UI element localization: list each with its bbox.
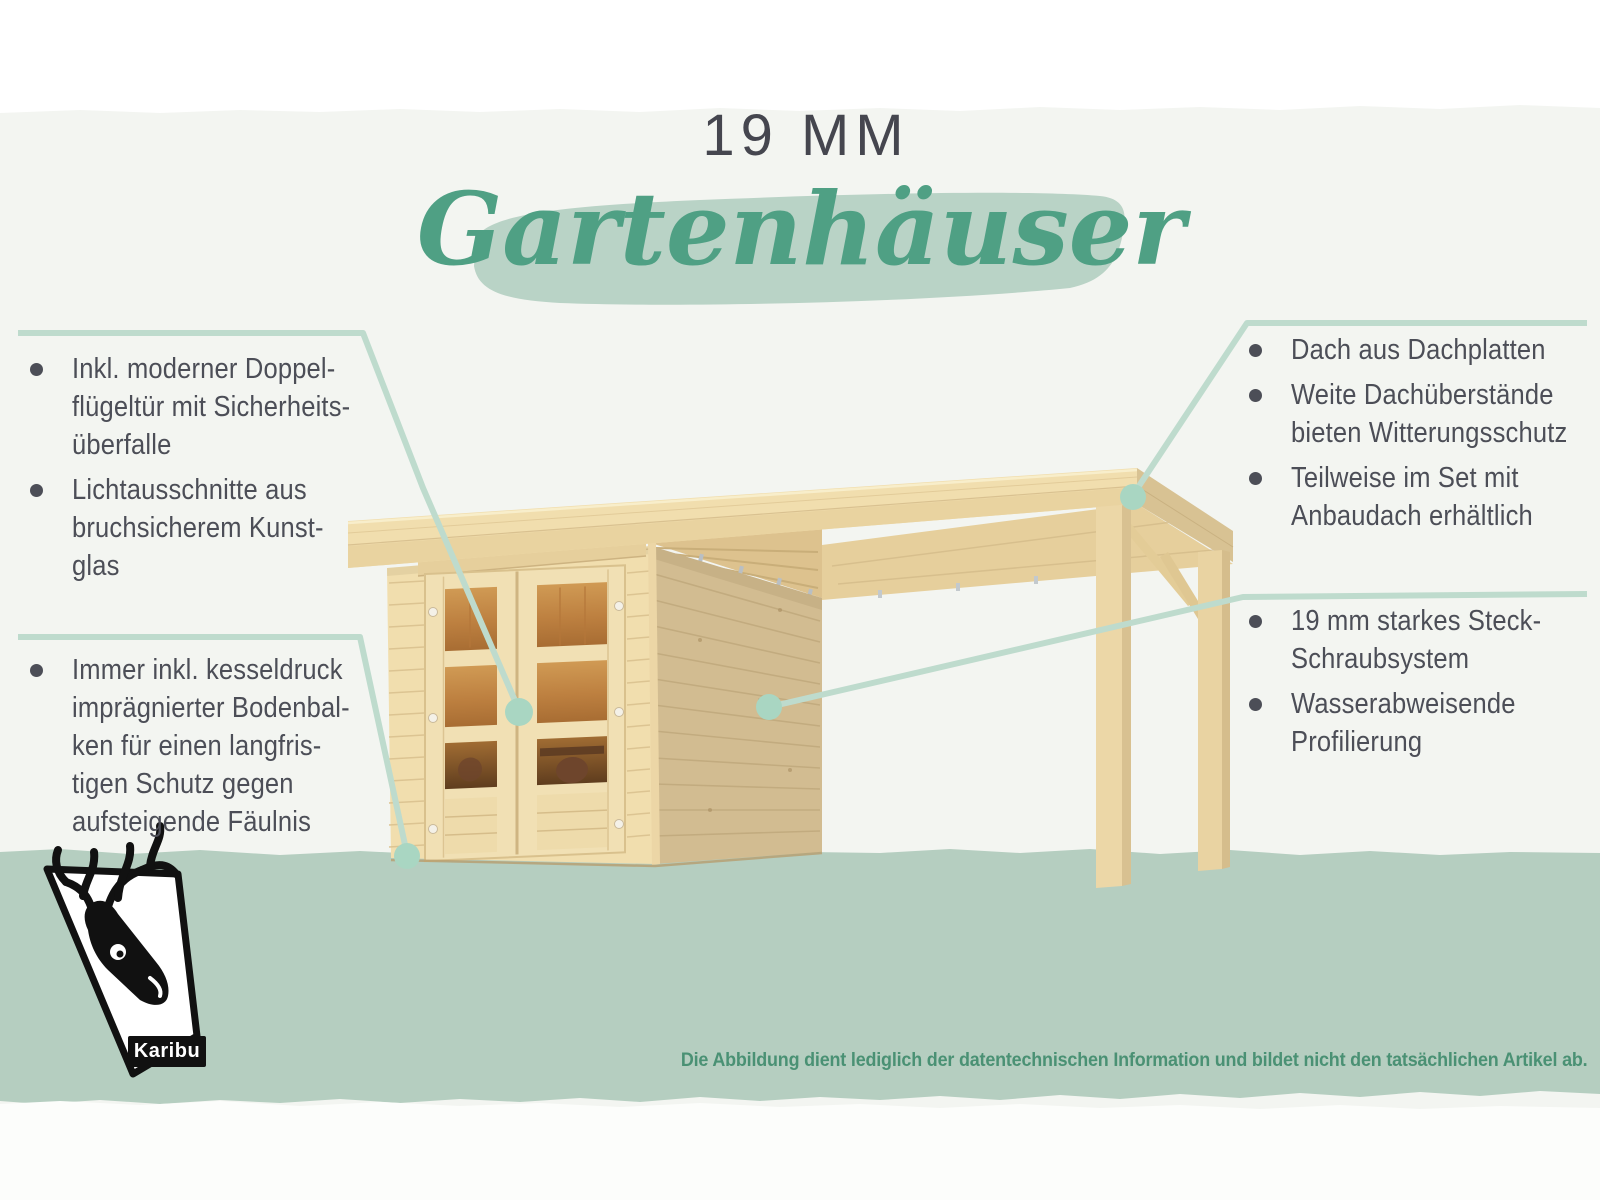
list-item: Dach aus Dachplatten [1246,331,1600,369]
callout-dot-wall [756,694,782,720]
list-item: Inkl. moderner Doppel- flügeltür mit Sic… [27,350,388,464]
shed-side-wall [651,546,822,864]
bullet-dot [30,484,43,497]
garden-shed-illustration [348,468,1233,888]
callout-text: Wasserabweisende Profilierung [1291,685,1516,761]
bullet-dot [1249,615,1262,628]
karibu-logo-label: Karibu [128,1036,206,1067]
callout-right-top: Dach aus Dachplatten Weite Dachüberständ… [1246,331,1600,542]
callout-text: 19 mm starkes Steck- Schraubsystem [1291,602,1541,678]
list-item: Weite Dachüberstände bieten Witterungssc… [1246,376,1600,452]
bullet-dot [1249,472,1262,485]
list-item: Wasserabweisende Profilierung [1246,685,1575,761]
disclaimer-text: Die Abbildung dient lediglich der datent… [680,1049,1587,1072]
callout-text: Lichtausschnitte aus bruchsicherem Kunst… [72,471,324,585]
callout-left-top: Inkl. moderner Doppel- flügeltür mit Sic… [27,350,388,592]
callout-text: Inkl. moderner Doppel- flügeltür mit Sic… [72,350,350,464]
callout-text: Dach aus Dachplatten [1291,331,1546,369]
bullet-dot [1249,344,1262,357]
title-script: Gartenhäuser [417,174,1185,284]
callout-left-bottom: Immer inkl. kesseldruck imprägnierter Bo… [27,651,388,848]
list-item: Immer inkl. kesseldruck imprägnierter Bo… [27,651,388,841]
callout-right-bottom: 19 mm starkes Steck- Schraubsystem Wasse… [1246,602,1575,768]
callout-dot-base [394,843,420,869]
callout-text: Immer inkl. kesseldruck imprägnierter Bo… [72,651,350,841]
callout-text: Weite Dachüberstände bieten Witterungssc… [1291,376,1567,452]
callout-dot-door [505,698,533,726]
bullet-dot [1249,389,1262,402]
bullet-dot [30,664,43,677]
callout-dot-roof [1120,484,1146,510]
callout-text: Teilweise im Set mit Anbaudach erhältlic… [1291,459,1533,535]
infographic-canvas: 19 MM Gartenhäuser Inkl. moderner Doppel… [0,0,1600,1200]
top-white-strip [0,0,1600,113]
bullet-dot [1249,698,1262,711]
list-item: 19 mm starkes Steck- Schraubsystem [1246,602,1575,678]
bottom-white-strip [0,1101,1600,1200]
title-kicker: 19 MM [702,102,909,169]
list-item: Lichtausschnitte aus bruchsicherem Kunst… [27,471,388,585]
bullet-dot [30,363,43,376]
list-item: Teilweise im Set mit Anbaudach erhältlic… [1246,459,1600,535]
